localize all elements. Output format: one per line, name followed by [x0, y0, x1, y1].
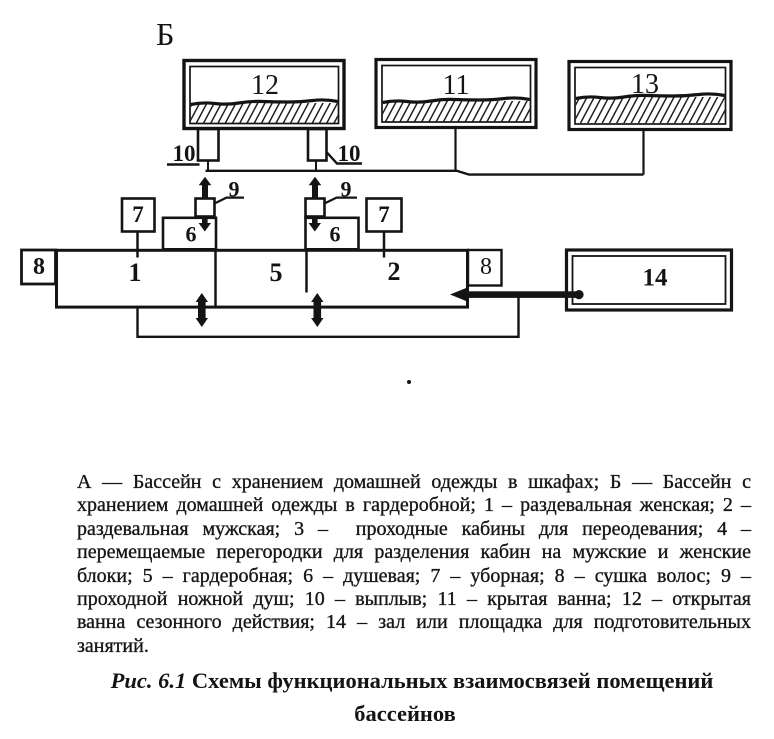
svg-text:6: 6: [186, 222, 197, 247]
svg-text:11: 11: [443, 70, 470, 101]
svg-text:7: 7: [378, 202, 390, 227]
svg-text:7: 7: [132, 202, 144, 227]
svg-text:5: 5: [270, 258, 283, 287]
svg-text:12: 12: [251, 70, 279, 101]
svg-text:14: 14: [643, 265, 669, 292]
svg-text:13: 13: [631, 69, 659, 100]
svg-text:6: 6: [330, 222, 341, 247]
svg-text:10: 10: [338, 141, 361, 166]
svg-text:1: 1: [129, 258, 142, 287]
svg-text:10: 10: [173, 141, 196, 166]
svg-text:2: 2: [388, 257, 401, 286]
svg-text:8: 8: [480, 254, 492, 280]
svg-text:8: 8: [33, 254, 45, 280]
